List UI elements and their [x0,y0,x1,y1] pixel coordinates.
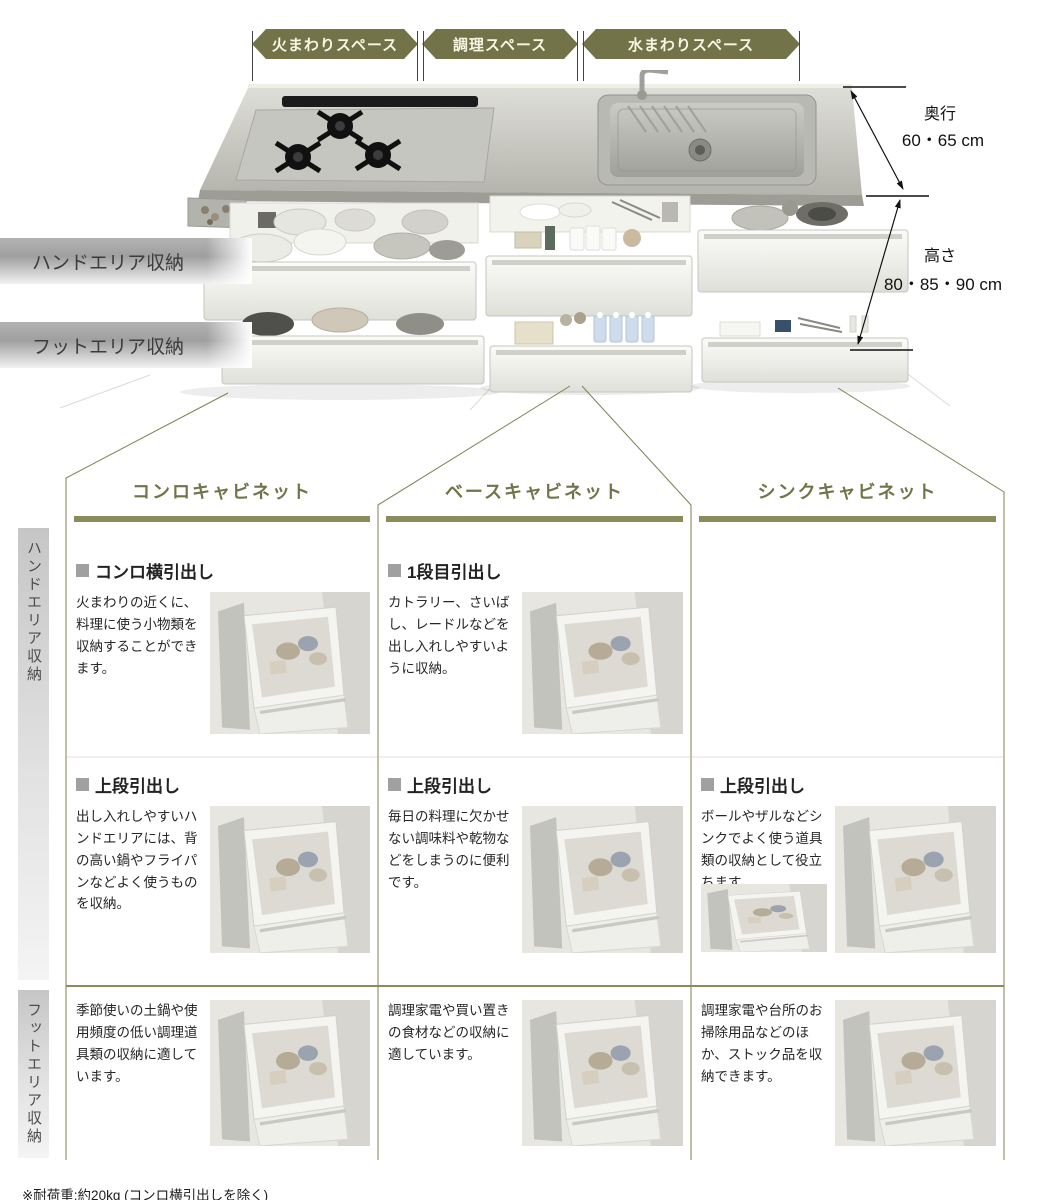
section-konro-side-drawer: コンロ横引出し 火まわりの近くに、料理に使う小物類を収納することができます。 [76,558,370,734]
section-sink-foot-drawer: 調理家電や台所のお掃除用品などのほか、ストック品を収納できます。 [701,1000,996,1146]
column-underline-konro [74,516,370,522]
photo-base-foot-drawer [522,1000,683,1146]
section-heading: 1段目引出し [407,558,501,583]
foot-area-vertical-strip: フットエリア収納 [18,990,49,1158]
section-text: 季節使いの土鍋や使用頻度の低い調理道具類の収納に適しています。 [76,1000,202,1087]
depth-value: 60・65 cm [868,126,1018,151]
section-heading: 上段引出し [407,772,492,797]
section-sink-upper-drawer: 上段引出し ボールやザルなどシンクでよく使う道具類の収納として役立ちます。 [701,772,996,953]
catalog-page: 火まわりスペース 調理スペース 水まわりスペース [0,0,1040,1200]
section-konro-foot-drawer: 季節使いの土鍋や使用頻度の低い調理道具類の収納に適しています。 [76,1000,370,1146]
column-underline-base [386,516,683,522]
hand-area-vertical-strip: ハンドエリア収納 [18,528,49,980]
depth-label: 奥行 [880,100,1000,124]
section-text: 調理家電や買い置きの食材などの収納に適しています。 [388,1000,514,1066]
section-bullet-square [388,564,401,577]
section-heading: 上段引出し [720,772,805,797]
section-base-foot-drawer: 調理家電や買い置きの食材などの収納に適しています。 [388,1000,683,1146]
banner-cook-space: 調理スペース [422,29,578,59]
column-header-sink: シンクキャビネット [691,478,1004,504]
section-heading: コンロ横引出し [95,558,214,583]
column-underline-sink [699,516,996,522]
height-value: 80・85・90 cm [858,270,1028,295]
section-konro-upper-drawer: 上段引出し 出し入れしやすいハンドエリアには、背の高い鍋やフライパンなどよく使う… [76,772,370,953]
banner-fire-space: 火まわりスペース [252,29,418,59]
banner-water-label: 水まわりスペース [628,34,754,55]
section-first-drawer: 1段目引出し カトラリー、さいばし、レードルなどを出し入れしやすいように収納。 [388,558,683,734]
section-text: ボールやザルなどシンクでよく使う道具類の収納として役立ちます。 [701,806,827,893]
foot-area-bar: フットエリア収納 [0,322,252,368]
section-text: カトラリー、さいばし、レードルなどを出し入れしやすいように収納。 [388,592,514,679]
section-bullet-square [76,564,89,577]
photo-konro-upper-drawer [210,806,370,953]
photo-sink-upper-drawer-detail [701,884,827,952]
banner-fire-label: 火まわりスペース [272,34,398,55]
section-text: 火まわりの近くに、料理に使う小物類を収納することができます。 [76,592,202,679]
column-header-base: ベースキャビネット [378,478,691,504]
height-label: 高さ [880,242,1000,266]
section-base-upper-drawer: 上段引出し 毎日の料理に欠かせない調味料や乾物などをしまうのに便利です。 [388,772,683,953]
section-text: 毎日の料理に欠かせない調味料や乾物などをしまうのに便利です。 [388,806,514,893]
hand-area-label: ハンドエリア収納 [32,248,184,275]
banner-cook-label: 調理スペース [453,34,547,55]
section-bullet-square [701,778,714,791]
foot-area-vertical-label: フットエリア収納 [23,990,44,1158]
section-heading: 上段引出し [95,772,180,797]
load-capacity-footnote: ※耐荷重:約20kg (コンロ横引出しを除く) [22,1184,268,1200]
photo-konro-side-drawer [210,592,370,734]
hand-area-vertical-label: ハンドエリア収納 [23,528,44,980]
column-header-konro: コンロキャビネット [66,478,378,504]
photo-sink-upper-drawer [835,806,996,953]
section-bullet-square [76,778,89,791]
photo-first-drawer [522,592,683,734]
banner-water-space: 水まわりスペース [582,29,800,59]
foot-area-label: フットエリア収納 [32,332,184,359]
hand-area-bar: ハンドエリア収納 [0,238,252,284]
section-text: 出し入れしやすいハンドエリアには、背の高い鍋やフライパンなどよく使うものを収納。 [76,806,202,915]
photo-konro-foot-drawer [210,1000,370,1146]
section-bullet-square [388,778,401,791]
photo-base-upper-drawer [522,806,683,953]
photo-sink-foot-drawer [835,1000,996,1146]
section-text: 調理家電や台所のお掃除用品などのほか、ストック品を収納できます。 [701,1000,827,1087]
